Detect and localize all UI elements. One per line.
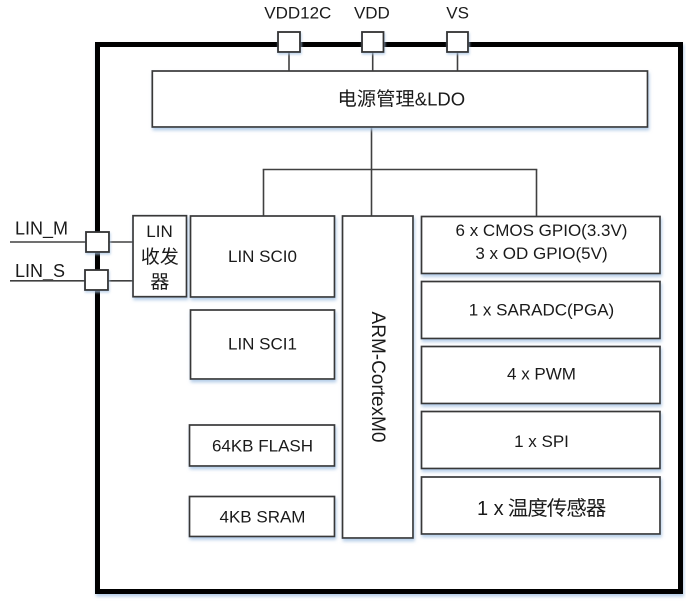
svg-text:VS: VS — [446, 4, 469, 23]
svg-text:4KB SRAM: 4KB SRAM — [220, 508, 306, 527]
svg-text:LIN_M: LIN_M — [15, 219, 68, 240]
svg-text:VDD12C: VDD12C — [264, 4, 331, 23]
svg-text:1 x SARADC(PGA): 1 x SARADC(PGA) — [469, 301, 614, 320]
svg-text:3 x OD GPIO(5V): 3 x OD GPIO(5V) — [475, 244, 607, 263]
svg-text:&LDO: &LDO — [415, 89, 465, 110]
svg-text:LIN: LIN — [146, 222, 172, 241]
svg-text:LIN SCI0: LIN SCI0 — [228, 247, 297, 266]
svg-text:1 x: 1 x — [477, 498, 504, 520]
svg-text:6 x CMOS GPIO(3.3V): 6 x CMOS GPIO(3.3V) — [456, 221, 628, 240]
svg-text:VDD: VDD — [354, 4, 390, 23]
svg-text:LIN SCI1: LIN SCI1 — [228, 335, 297, 354]
svg-text:64KB FLASH: 64KB FLASH — [212, 437, 313, 456]
svg-text:4 x PWM: 4 x PWM — [507, 364, 576, 383]
svg-text:LIN_S: LIN_S — [15, 261, 65, 282]
svg-text:1 x SPI: 1 x SPI — [514, 432, 569, 451]
svg-text:ARM-CortexM0: ARM-CortexM0 — [367, 312, 388, 443]
